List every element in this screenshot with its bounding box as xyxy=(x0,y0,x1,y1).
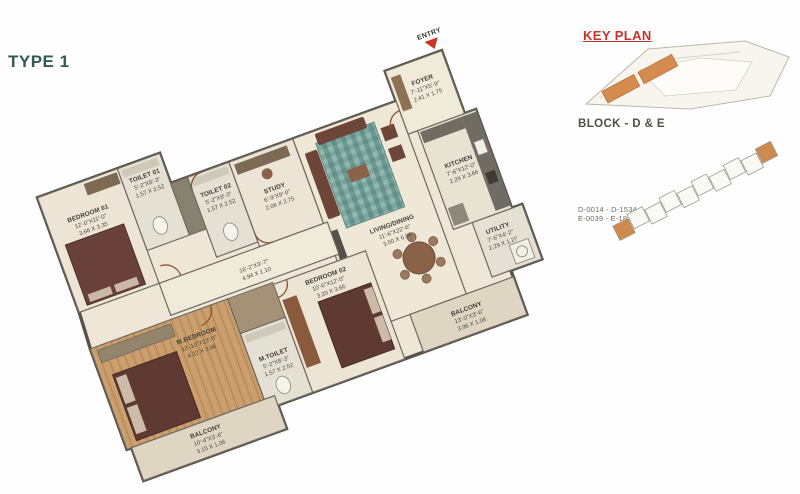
entry-arrow-icon xyxy=(425,37,442,51)
floor-plan: ENTRY FOYER 7'-11"X5'-9" 2.41 X 1.75 xyxy=(28,21,567,482)
entry-label: ENTRY xyxy=(416,27,442,42)
brochure-page: TYPE 1 KEY PLAN BLOCK - D & E D-0014 - D… xyxy=(0,0,800,494)
key-plan xyxy=(586,41,789,240)
plan-canvas: ENTRY FOYER 7'-11"X5'-9" 2.41 X 1.75 xyxy=(0,0,800,494)
block-tower-diagram xyxy=(611,141,780,240)
